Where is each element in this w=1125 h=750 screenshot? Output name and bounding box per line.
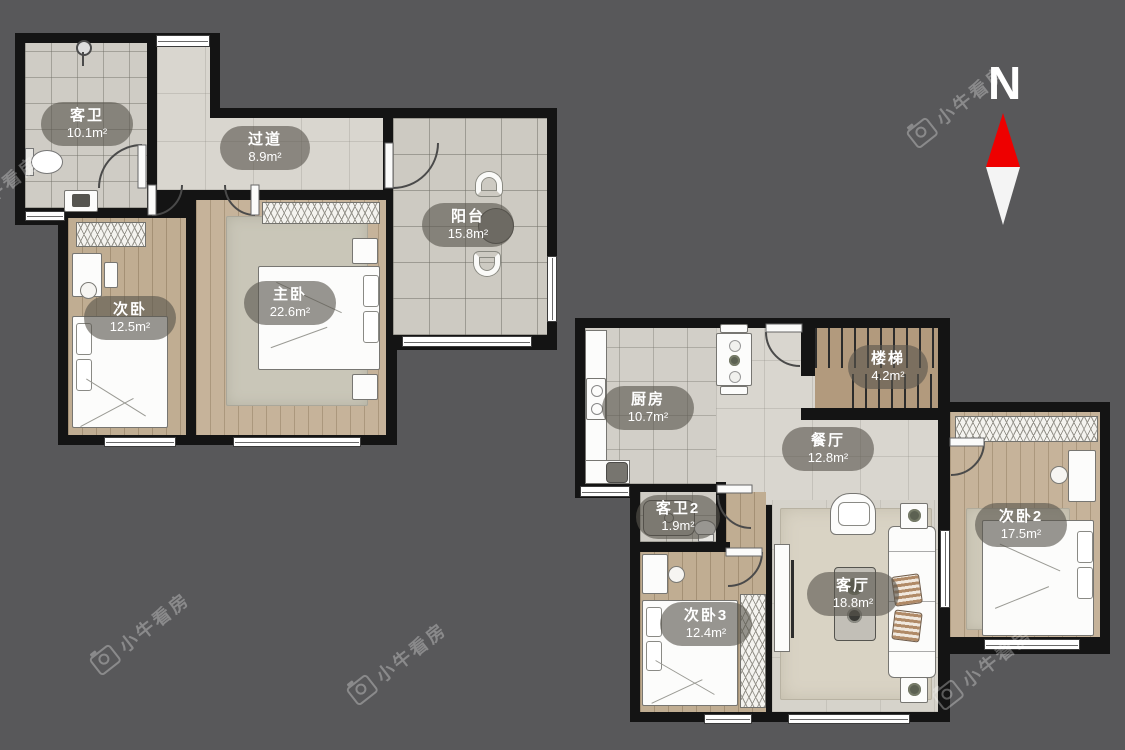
room-name: 阳台 — [432, 208, 504, 226]
room-label-zhuwo: 主卧 22.6m² — [244, 281, 336, 325]
room-name: 餐厅 — [792, 432, 864, 450]
room-area: 12.5m² — [94, 319, 166, 335]
room-name: 次卧2 — [985, 508, 1057, 526]
room-area: 22.6m² — [254, 304, 326, 320]
room-name: 厨房 — [612, 391, 684, 409]
room-area: 17.5m² — [985, 526, 1057, 542]
north-arrow-red — [986, 113, 1020, 167]
room-label-canting: 餐厅 12.8m² — [782, 427, 874, 471]
room-label-ciwo: 次卧 12.5m² — [84, 296, 176, 340]
room-area: 15.8m² — [432, 226, 504, 242]
room-area: 8.9m² — [230, 149, 300, 165]
room-label-chufang: 厨房 10.7m² — [602, 386, 694, 430]
room-name: 客厅 — [817, 577, 889, 595]
door-arc-balcony — [393, 143, 438, 188]
floorplan-canvas: 客卫 10.1m² 过道 8.9m² 阳台 15.8m² 次卧 12.5m² 主… — [0, 0, 1125, 750]
room-label-yangtai: 阳台 15.8m² — [422, 203, 514, 247]
room-name: 次卧3 — [670, 607, 742, 625]
room-name: 楼梯 — [858, 350, 918, 368]
room-area: 10.7m² — [612, 409, 684, 425]
room-label-kewei2: 客卫2 1.9m² — [636, 495, 720, 539]
room-label-louti: 楼梯 4.2m² — [848, 345, 928, 389]
door-leaf-balcony — [385, 143, 393, 188]
door-leaf-ciwo — [148, 185, 156, 215]
room-area: 18.8m² — [817, 595, 889, 611]
room-label-kewei: 客卫 10.1m² — [41, 102, 133, 146]
door-leaf-zhuwo — [251, 185, 259, 215]
room-area: 4.2m² — [858, 368, 918, 384]
room-area: 12.8m² — [792, 450, 864, 466]
room-area: 1.9m² — [646, 518, 710, 534]
door-leaf-bath2 — [717, 485, 752, 493]
room-name: 客卫2 — [646, 500, 710, 518]
door-leaf-entrance — [766, 324, 802, 332]
room-label-keting: 客厅 18.8m² — [807, 572, 899, 616]
room-name: 次卧 — [94, 301, 166, 319]
door-leaf-ciwo3 — [726, 548, 762, 556]
room-name: 过道 — [230, 131, 300, 149]
door-leaf-bath — [138, 145, 146, 188]
door-arc-bath2 — [718, 495, 751, 528]
room-label-ciwo3: 次卧3 12.4m² — [660, 602, 752, 646]
room-name: 客卫 — [51, 107, 123, 125]
door-arc-ciwo3 — [728, 552, 762, 586]
door-arc-ciwo2 — [951, 442, 984, 475]
room-label-ciwo2: 次卧2 17.5m² — [975, 503, 1067, 547]
room-label-guodao: 过道 8.9m² — [220, 126, 310, 170]
room-name: 主卧 — [254, 286, 326, 304]
room-area: 12.4m² — [670, 625, 742, 641]
door-arc-entrance — [766, 332, 800, 366]
room-area: 10.1m² — [51, 125, 123, 141]
door-leaf-ciwo2 — [950, 438, 984, 446]
north-arrow-white — [986, 167, 1020, 225]
door-arc-bath — [99, 145, 142, 188]
